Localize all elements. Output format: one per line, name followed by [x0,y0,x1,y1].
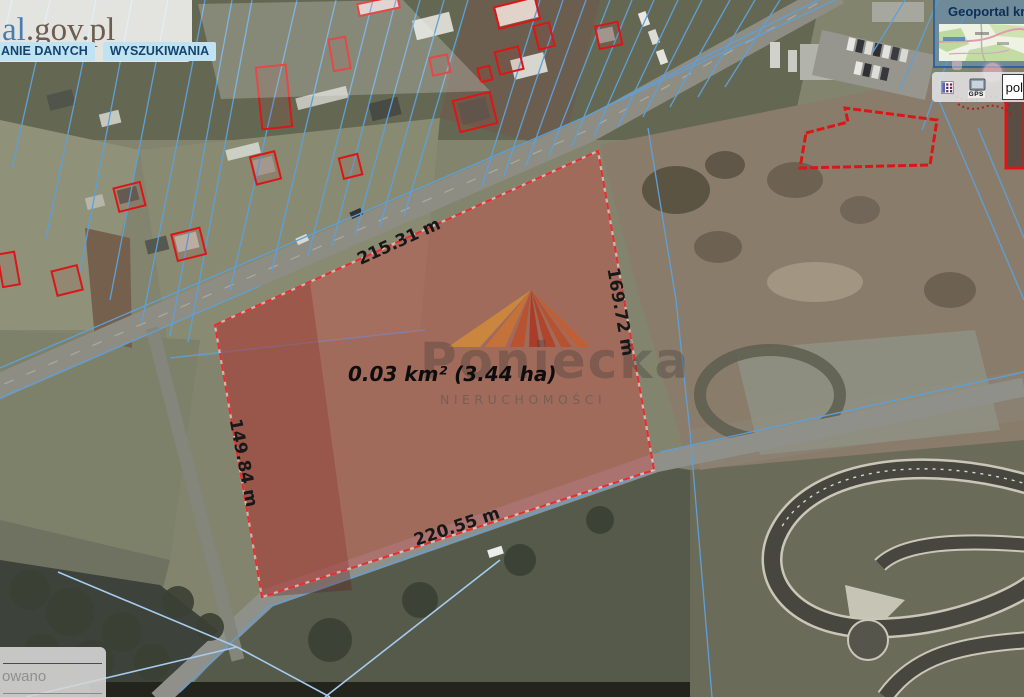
layers-grid-icon[interactable] [941,79,954,96]
map-toolbar: GPS pol [932,72,1024,102]
status-divider [3,663,102,664]
gps-icon[interactable]: GPS [967,78,989,97]
minimap-panel[interactable]: Geoportal kra [933,0,1024,68]
minimap-thumbnail[interactable] [939,24,1024,61]
status-divider-2 [3,693,102,694]
status-panel: owano [0,647,106,697]
gps-icon-label: GPS [968,91,985,98]
parcel-area-label: 0.03 km² (3.44 ha) [348,362,557,386]
watermark-subtitle-text: NIERUCHOMOŚCI [440,392,606,407]
status-text: owano [2,668,46,685]
language-selector[interactable]: pol [1002,74,1024,100]
pink-square-marker [952,60,962,70]
minimap-title: Geoportal kra [935,0,1024,22]
minimap-map-icon [939,24,1024,61]
geoportal-app: Poniecka NIERUCHOMOŚCI 0.03 km² (3.44 ha… [0,0,1024,697]
tab-wyszukiwania[interactable]: WYSZUKIWANIA [103,42,216,61]
tab-danych[interactable]: ANIE DANYCH [0,42,95,61]
branding-panel: al.gov.pl ANIE DANYCH WYSZUKIWANIA [0,0,192,62]
main-nav: ANIE DANYCH WYSZUKIWANIA [0,42,216,61]
